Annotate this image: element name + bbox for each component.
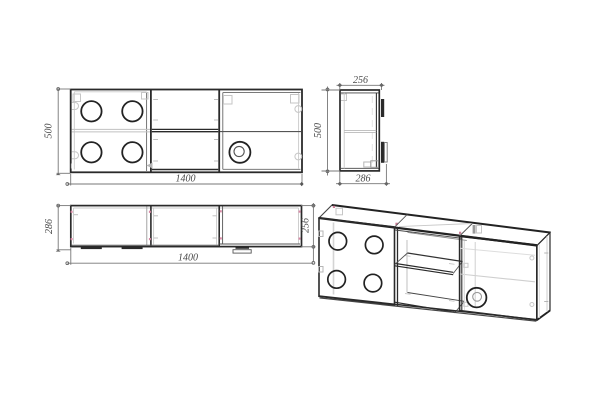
svg-text:500: 500 xyxy=(313,123,324,138)
svg-text:1400: 1400 xyxy=(178,252,198,263)
svg-text:1400: 1400 xyxy=(176,174,196,185)
svg-text:286: 286 xyxy=(44,219,55,234)
svg-text:500: 500 xyxy=(44,124,55,139)
svg-text:256: 256 xyxy=(301,218,312,233)
svg-text:286: 286 xyxy=(356,173,371,184)
svg-text:256: 256 xyxy=(353,75,368,86)
